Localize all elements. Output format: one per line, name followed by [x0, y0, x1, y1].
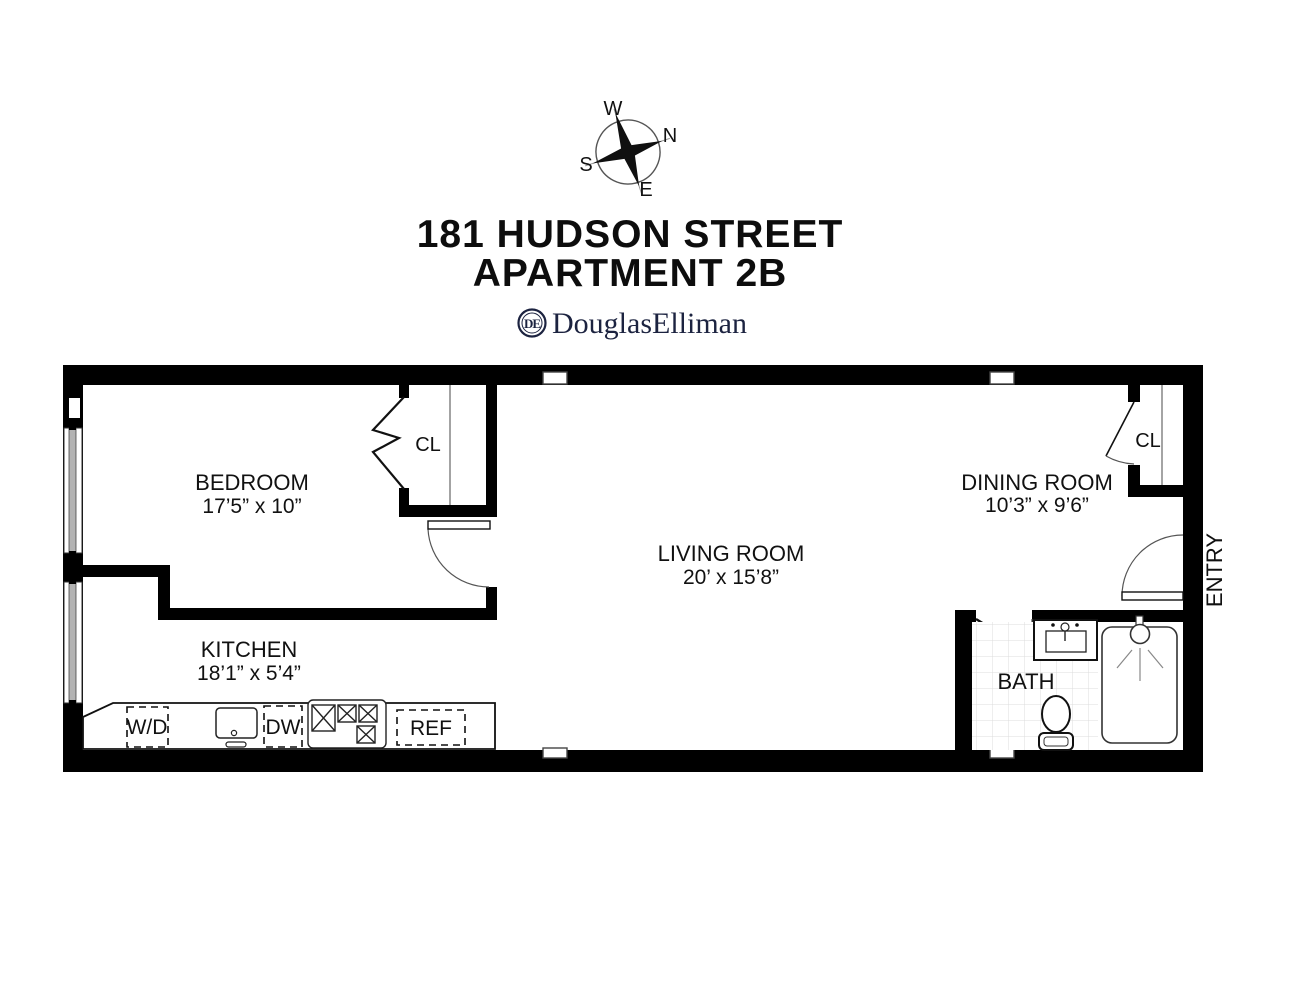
washer-dryer-label: W/D: [127, 716, 168, 739]
brand-logo: DE DouglasElliman: [519, 307, 747, 340]
wall-dining-closet-stub-top: [1128, 385, 1140, 402]
windows: [64, 372, 1014, 758]
wall-bedroom-jog: [63, 565, 170, 577]
bath-label: BATH: [997, 669, 1054, 694]
living-room-label: LIVING ROOM: [658, 541, 805, 566]
compass-label-east: E: [639, 179, 652, 201]
kitchen-label: KITCHEN: [201, 637, 298, 662]
wall-top: [63, 365, 1203, 385]
toilet-icon: [1039, 696, 1073, 750]
bedroom-closet-bifold-door: [373, 397, 404, 489]
kitchen-counter: W/D DW REF: [83, 700, 495, 749]
window-slot: [69, 398, 80, 418]
window-left-upper: [64, 425, 82, 556]
window-top-dining: [990, 372, 1014, 384]
dishwasher-label: DW: [266, 716, 301, 739]
dining-room-label: DINING ROOM: [961, 470, 1113, 495]
bedroom-closet-label: CL: [415, 434, 441, 456]
bedroom-dims: 17’5” x 10”: [202, 495, 301, 518]
wall-bedroom-closet-bottom: [399, 505, 497, 517]
wall-bedroom-bottom: [158, 608, 497, 620]
window-bottom-living: [543, 748, 567, 758]
brand-name: DouglasElliman: [552, 307, 747, 340]
dining-room-dims: 10’3” x 9’6”: [985, 494, 1089, 517]
refrigerator-label: REF: [410, 717, 452, 740]
brand-monogram: DE: [524, 316, 540, 331]
wall-bath-top-pier: [955, 610, 976, 622]
plan-title-line1: 181 HUDSON STREET: [417, 213, 844, 256]
wall-bedroom-jog-connector: [158, 565, 170, 620]
plan-title-line2: APARTMENT 2B: [473, 252, 788, 295]
wall-bedroom-right: [486, 385, 497, 517]
window-top-living: [543, 372, 567, 384]
window-left-lower: [64, 579, 82, 705]
wall-dining-closet-bottom: [1128, 485, 1183, 497]
dining-closet-label: CL: [1135, 430, 1161, 452]
entry-door: [1122, 535, 1183, 600]
floor-plan-canvas: W N S E 181 HUDSON STREET APARTMENT 2B D…: [0, 0, 1294, 1000]
wall-right: [1183, 365, 1203, 772]
kitchen-dims: 18’1” x 5’4”: [197, 662, 301, 685]
compass-label-west: W: [604, 98, 623, 120]
shower-tub-icon: [1102, 616, 1177, 743]
stove-icon: [308, 700, 386, 748]
wall-bath-left: [955, 610, 972, 750]
compass-label-north: N: [663, 125, 677, 147]
dining-closet-door: [1106, 402, 1134, 464]
living-room-dims: 20’ x 15’8”: [683, 566, 779, 589]
bedroom-door: [428, 521, 490, 587]
wall-bedroom-closet-stub-bottom: [399, 488, 409, 507]
floor-plan-page: W N S E 181 HUDSON STREET APARTMENT 2B D…: [0, 0, 1294, 1000]
entry-label: ENTRY: [1202, 533, 1227, 607]
wall-bedroom-closet-stub-top: [399, 385, 409, 398]
wall-bottom: [63, 750, 1203, 772]
bath-sink-icon: [1034, 620, 1097, 660]
compass-label-south: S: [579, 154, 592, 176]
bedroom-label: BEDROOM: [195, 470, 309, 495]
compass-rose: W N S E: [571, 96, 683, 208]
